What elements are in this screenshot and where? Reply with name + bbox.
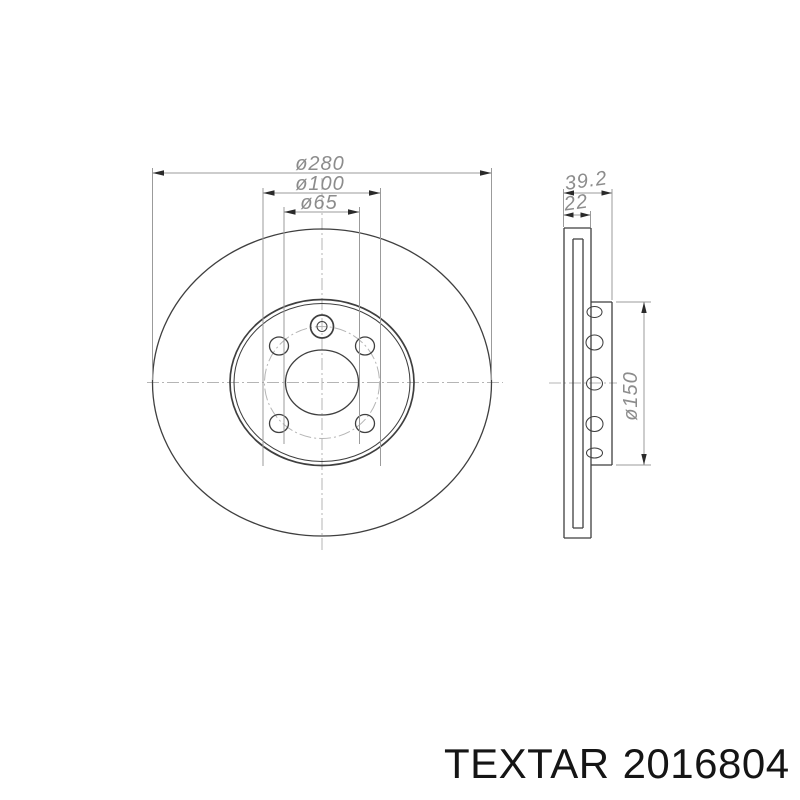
arrowhead — [153, 170, 165, 176]
arrowhead — [480, 170, 492, 176]
arrowhead — [263, 190, 275, 196]
flange-hole — [586, 417, 603, 432]
arrowhead — [641, 302, 646, 313]
hub-diameter-label: ø150 — [620, 371, 642, 421]
arrowhead — [348, 209, 360, 215]
flange-holes — [586, 307, 603, 459]
dimension-disc-thickness: 22 — [562, 190, 591, 227]
part-number: 2016804 — [623, 740, 790, 788]
bolt-hole — [270, 337, 289, 355]
bolt-hole — [356, 415, 375, 433]
arrowhead — [641, 454, 646, 465]
bolt-hole — [270, 415, 289, 433]
side-view: 39.2 22 ø150 — [549, 167, 651, 538]
brake-disc-technical-drawing: ø280 ø100 ø65 — [0, 0, 800, 800]
front-centerlines — [147, 178, 503, 552]
drawing-canvas: ø280 ø100 ø65 — [0, 0, 800, 800]
arrowhead — [284, 209, 296, 215]
outer-diameter-label: ø280 — [295, 153, 345, 175]
dimension-total-width: 39.2 — [563, 167, 612, 300]
front-view: ø280 ø100 ø65 — [147, 153, 503, 552]
dimension-hub-diameter: ø150 — [616, 302, 651, 465]
center-bore-label: ø65 — [300, 192, 337, 214]
arrowhead — [369, 190, 381, 196]
brand-name: TEXTAR — [444, 740, 610, 788]
caption: TEXTAR 2016804 — [444, 740, 790, 788]
flange-hole — [587, 307, 602, 318]
flange-hole — [587, 448, 603, 458]
disc-thickness-label: 22 — [562, 190, 590, 215]
arrowhead — [602, 190, 613, 195]
flange-hole — [586, 335, 603, 350]
